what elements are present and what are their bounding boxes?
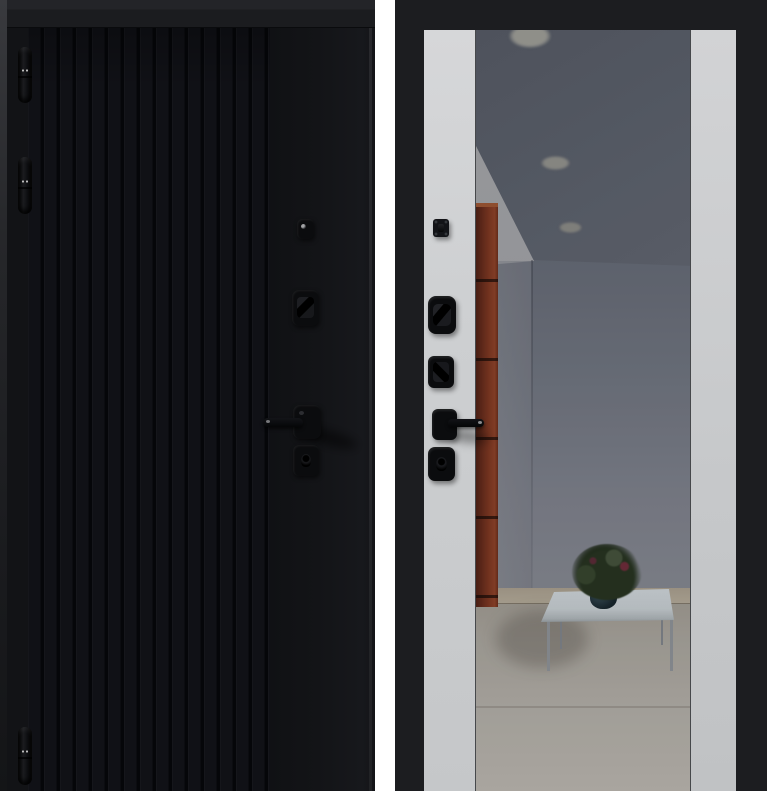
deadbolt — [428, 356, 454, 388]
hinge-middle — [18, 157, 32, 214]
mirror-insert — [475, 30, 691, 791]
secondary-lock — [428, 447, 455, 481]
hinge-pin-dots — [21, 180, 29, 183]
night-latch — [433, 219, 449, 237]
mirror-tint-overlay — [476, 30, 690, 791]
fluted-slat-panel — [28, 28, 270, 791]
hinge-pin-dots — [21, 750, 29, 753]
flat-lock-stile — [270, 28, 375, 791]
hinge-pin-dots — [21, 69, 29, 72]
door-viewer — [297, 219, 314, 239]
secondary-lock — [293, 445, 319, 476]
cylinder-lock — [292, 290, 319, 326]
hinge-top — [18, 47, 32, 103]
door-interior-view — [395, 0, 767, 791]
cylinder-cover — [428, 296, 456, 334]
door-top-rail — [0, 0, 375, 28]
lever-handle — [263, 418, 303, 427]
door-product-photo — [0, 0, 767, 791]
side-panel-right — [691, 30, 736, 791]
door-exterior-view — [0, 0, 375, 791]
lever-handle — [448, 419, 484, 427]
hinge-bottom — [18, 727, 32, 785]
door-left-edge — [0, 0, 7, 791]
